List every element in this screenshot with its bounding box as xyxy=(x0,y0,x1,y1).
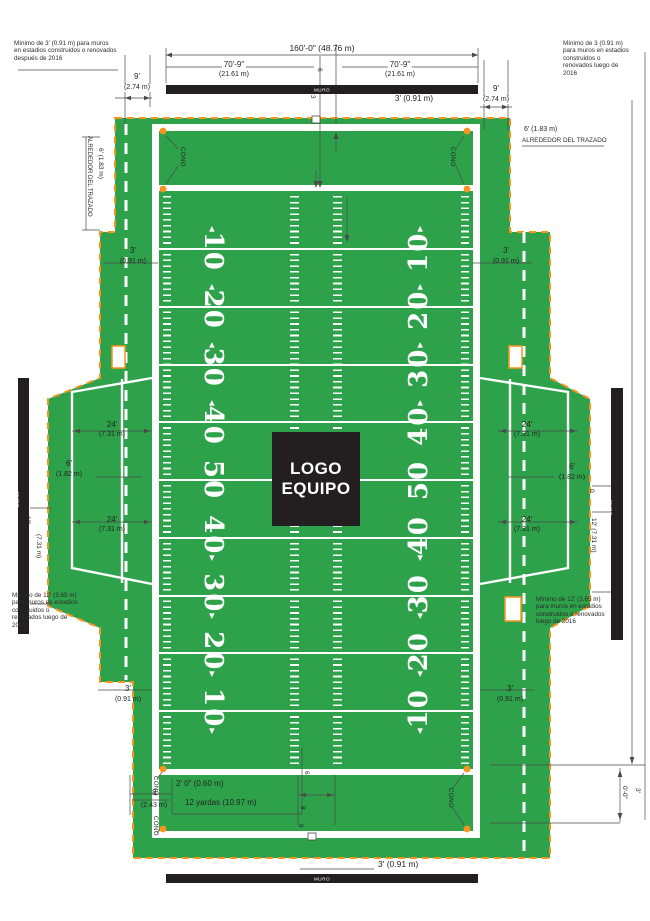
corner-dim-3: 3' xyxy=(634,788,641,793)
sideline-ticks-left xyxy=(163,196,171,764)
wall-0-right: 0 xyxy=(588,489,595,493)
dim-3ft-upper-right: 3' xyxy=(503,246,509,255)
around-right-dim: 6' (1.83 m) xyxy=(524,126,557,134)
dim-9ft-left-m: (2.74 m) xyxy=(122,84,152,92)
logo-line1: LOGO xyxy=(290,459,342,479)
dim-3ft-lower-left: 3' xyxy=(125,684,131,693)
bench-right-6-m: (1.82 m) xyxy=(559,474,585,482)
cone-label-bottom-left-1: CONO xyxy=(152,776,158,796)
bench-right-24-bot: 24' xyxy=(522,515,532,524)
dim-8ft-m: (2.43 m) xyxy=(141,802,167,810)
dim-3ft-top: 3' (0.91 m) xyxy=(395,94,433,103)
note-top-right: Mínimo de 3 (0.91 m) para muros en estad… xyxy=(563,40,648,77)
logo-line2: EQUIPO xyxy=(281,479,350,499)
cone-label-top-left: CONO xyxy=(179,147,185,167)
wall-12-right: 12' (7.31 m) xyxy=(590,518,597,552)
yard-number-10: ◂10 xyxy=(404,676,434,746)
wall-right-label: MURO xyxy=(608,500,613,516)
dim-3ft-lower-right-m: (0.91 m) xyxy=(497,696,523,704)
note-bottom-right: Mínimo de 12' (3.65 m) para muros en est… xyxy=(536,596,636,626)
cone-label-bottom-right: CONO xyxy=(447,788,453,808)
bench-right-24-top: 24' xyxy=(522,420,532,429)
wall-top: MURO xyxy=(166,85,478,94)
dim-9ft-left: 9' xyxy=(132,72,142,81)
dim-9ft-right-m: (2.74 m) xyxy=(481,96,511,104)
bench-right-6: 6' xyxy=(569,462,575,471)
team-logo-box: LOGO EQUIPO xyxy=(272,432,360,526)
goal-top-3: 3 xyxy=(309,95,316,99)
wall-12-left-m: (7.31 m) xyxy=(35,534,42,558)
dim-3ft-lower-left-m: (0.91 m) xyxy=(115,696,141,704)
dim-half-right-m: (21.61 m) xyxy=(385,71,415,79)
dim-3ft-upper-right-m: (0.91 m) xyxy=(493,258,519,266)
bench-left-6: 6' xyxy=(66,459,72,468)
note-bottom-left: Mínimo de 12' (3.65 m) para muros en est… xyxy=(12,592,104,629)
goal-bot-8: 8 xyxy=(299,806,306,810)
bench-right-24-top-m: (7.31 m) xyxy=(514,431,540,439)
dim-half-right: 70'-9" xyxy=(388,60,412,69)
dim-3ft-upper-left-m: (0.91 m) xyxy=(120,258,146,266)
around-left-text: ALREDEDOR DEL TRAZADO xyxy=(86,136,92,217)
cone-label-top-right: CONO xyxy=(449,147,455,167)
dim-half-left-m: (21.61 m) xyxy=(219,71,249,79)
bench-right-24-bot-m: (7.31 m) xyxy=(514,526,540,534)
corner-dim-00: 0'-0" xyxy=(621,786,628,799)
goal-bot-9: 9 xyxy=(297,824,304,828)
around-right-text: ALREDEDOR DEL TRAZADO xyxy=(522,137,607,144)
goal-bot-6: 6 xyxy=(303,771,310,775)
dim-2ft: 2' 0" (0.60 m) xyxy=(176,779,224,788)
sideline-ticks-right xyxy=(461,196,469,764)
note-top-left: Mínimo de 3' (0.91 m) para muros en esta… xyxy=(14,40,144,62)
bench-left-24-bot: 24' xyxy=(107,515,117,524)
wall-left-label: MURO xyxy=(15,492,20,508)
bench-left-24-top-m: (7.31 m) xyxy=(99,431,125,439)
wall-bottom-label: MURO xyxy=(314,876,330,881)
dim-half-left: 70'-9" xyxy=(222,60,246,69)
around-left-dim: 6' (1.83 m) xyxy=(97,148,104,179)
dim-9ft-right: 9' xyxy=(491,84,501,93)
wall-top-label: MURO xyxy=(314,87,330,92)
dim-3ft-lower-right: 3' xyxy=(507,684,513,693)
cone-label-bottom-left-2: CONO xyxy=(152,816,158,836)
wall-bottom: MURO xyxy=(166,874,478,883)
dim-12-yards: 12 yardas (10.97 m) xyxy=(185,798,257,807)
dim-3ft-bottom: 3' (0.91 m) xyxy=(378,859,418,869)
dim-3ft-upper-left: 3' xyxy=(130,246,136,255)
bench-left-24-bot-m: (7.31 m) xyxy=(99,526,125,534)
bench-left-24-top: 24' xyxy=(107,420,117,429)
football-field-diagram: MURO MURO MURO MURO LOGO EQUIPO ◂1010▸◂2… xyxy=(0,0,650,921)
goal-top-6: 6 xyxy=(316,68,323,72)
bench-left-6-m: (1.82 m) xyxy=(56,471,82,479)
dim-total-width: 160'-0" (48.76 m) xyxy=(289,43,354,53)
wall-12-left: 12' xyxy=(24,516,31,524)
yard-number-10: 10▸ xyxy=(198,676,228,746)
